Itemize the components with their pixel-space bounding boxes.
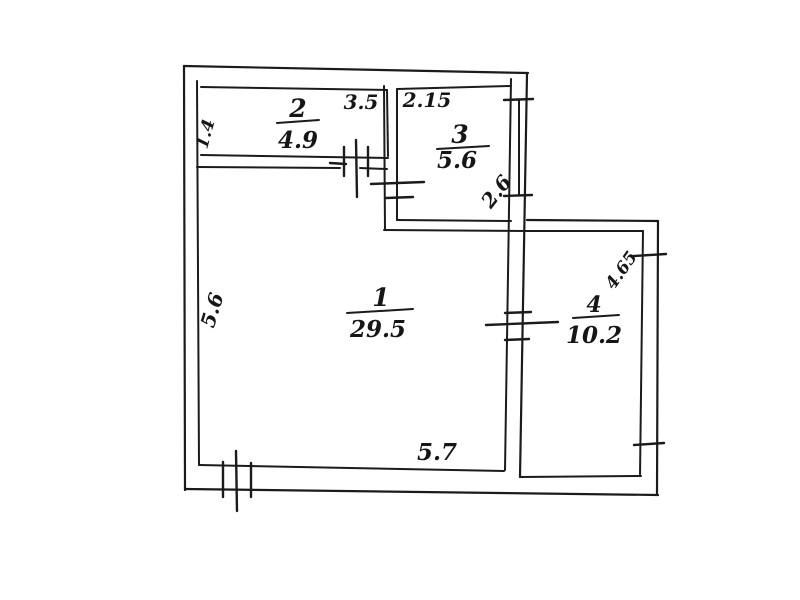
inner-walls [197, 74, 643, 477]
wall-room4-right-inner [640, 231, 643, 476]
window-dash [330, 163, 346, 164]
dim-room3-top: 2.15 [402, 88, 452, 112]
window-axis [356, 140, 357, 197]
wall-outer-left [184, 66, 185, 490]
window-axis [236, 451, 237, 511]
door-axis [486, 322, 558, 325]
door-tick [386, 197, 413, 198]
wall-room1-bottom [199, 465, 504, 471]
room-4-area: 10.2 [566, 322, 622, 349]
floor-plan-drawing: 1 29.5 2 4.9 3 5.6 4 10.2 3.5 2.15 1.4 2… [0, 0, 800, 600]
floor-plan-page: 1 29.5 2 4.9 3 5.6 4 10.2 3.5 2.15 1.4 2… [0, 0, 800, 600]
room-2-area: 4.9 [278, 127, 318, 154]
wall-room4-bottom [520, 476, 641, 477]
door-tick [505, 339, 529, 340]
wall-outer-arm-top [527, 220, 658, 221]
wall-room3-bottom-inner [397, 220, 511, 221]
dim-room1-left: 5.6 [195, 290, 228, 330]
wall-room1-top-b [360, 168, 387, 169]
door-tick [505, 312, 531, 313]
dimension-labels: 3.5 2.15 1.4 2.6 5.6 4.65 5.7 [193, 88, 642, 466]
room-3-area: 5.6 [437, 147, 477, 174]
window-tick [634, 254, 666, 256]
wall-outer-bottom [185, 489, 658, 495]
room-3-label: 3 5.6 [437, 120, 489, 174]
wall-outer-top [184, 66, 528, 73]
room-4-number: 4 [586, 292, 601, 318]
wall-room3-bottom-outer [384, 230, 527, 231]
dim-room1-bottom: 5.7 [417, 439, 457, 466]
wall-room2-bottom [201, 155, 388, 158]
wall-room2-right [387, 90, 388, 156]
door-tick [371, 182, 424, 184]
dim-room2-top: 3.5 [344, 90, 379, 114]
wall-divider-1-4-outer [520, 74, 527, 477]
window-icon-room4 [634, 254, 666, 445]
window-tick [634, 443, 664, 445]
wall-divider-1-4-inner [505, 79, 511, 470]
room-1-number: 1 [372, 283, 389, 312]
room-4-label: 4 10.2 [566, 292, 622, 349]
outer-walls [184, 66, 658, 495]
wall-divider-2-3-left [384, 86, 385, 230]
room-1-area: 29.5 [349, 316, 406, 343]
wall-outer-right [657, 221, 658, 495]
room-1-label: 1 29.5 [347, 283, 413, 343]
wall-room1-top-a [197, 167, 340, 168]
window-icon-room1-bottom [223, 451, 251, 511]
room-2-number: 2 [288, 94, 306, 123]
room-3-number: 3 [451, 120, 468, 149]
room-2-label: 2 4.9 [277, 94, 319, 154]
